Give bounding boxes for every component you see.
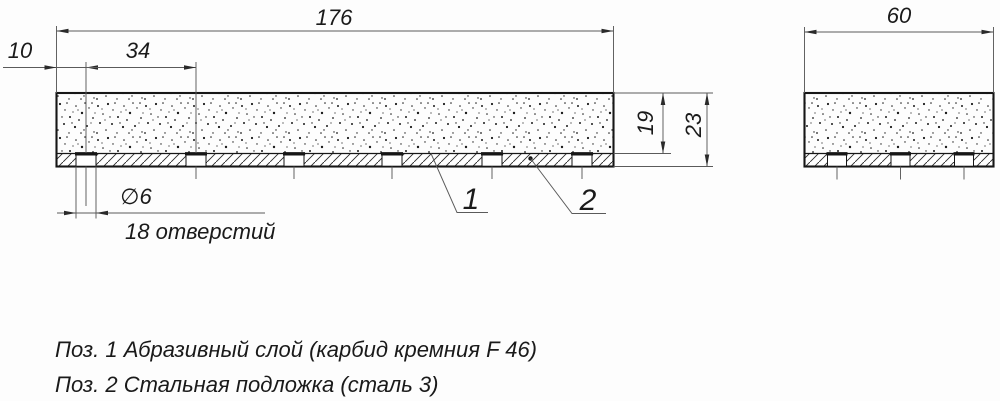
- abrasive-layer: [806, 94, 993, 154]
- arrow-left: [57, 29, 69, 34]
- arrow-right: [602, 29, 614, 34]
- technical-drawing: 176 10 34 ∅6 18 отверстий 19: [0, 0, 1000, 401]
- drawing-canvas: 176 10 34 ∅6 18 отверстий 19: [0, 0, 1000, 401]
- pos2-label: 2: [579, 184, 597, 217]
- pos1-label: 1: [463, 183, 480, 216]
- arrow: [96, 211, 108, 216]
- arrow: [661, 142, 666, 154]
- arrow-right: [982, 30, 994, 35]
- abrasive-layer: [58, 94, 613, 154]
- notes: Поз. 1 Абразивный слой (карбид кремния F…: [55, 337, 537, 397]
- dim-total-thickness-label: 23: [681, 112, 706, 138]
- dim-length-label: 176: [316, 5, 353, 30]
- note-pos2: Поз. 2 Стальная подложка (сталь 3): [55, 372, 438, 397]
- side-view: [805, 93, 994, 180]
- dim-abrasive-thickness-label: 19: [633, 111, 658, 135]
- hole: [75, 154, 97, 206]
- dim-hole-diameter: ∅6 18 отверстий: [57, 167, 275, 245]
- dim-pitch-label: 34: [126, 38, 150, 63]
- arrow: [661, 93, 666, 105]
- dim-width-label: 60: [887, 3, 912, 28]
- arrow: [705, 155, 710, 167]
- arrow: [705, 93, 710, 105]
- arrow-left: [805, 30, 817, 35]
- dim-offset-label: 10: [8, 38, 33, 63]
- arrow: [45, 65, 57, 70]
- arrow: [64, 211, 76, 216]
- holes-count-note: 18 отверстий: [125, 219, 275, 244]
- arrow: [184, 65, 196, 70]
- hole-diameter-label: ∅6: [120, 184, 152, 209]
- dim-width-60: 60: [805, 3, 994, 93]
- note-pos1: Поз. 1 Абразивный слой (карбид кремния F…: [55, 337, 537, 362]
